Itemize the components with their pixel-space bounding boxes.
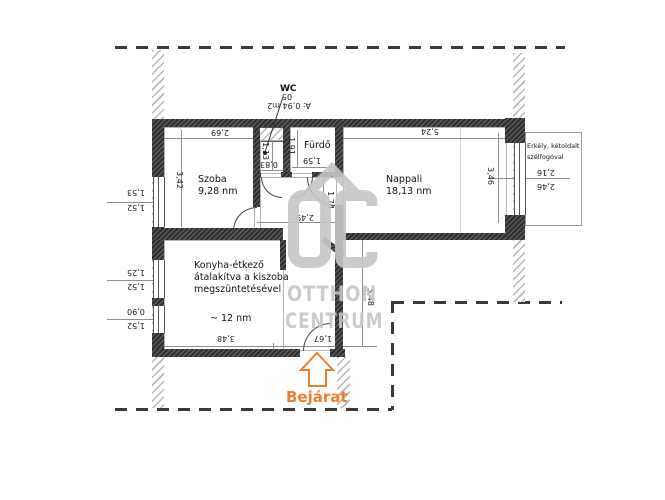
- watermark-brand-line1: OTTHON: [287, 284, 377, 305]
- floor-plan-canvas: 2,695,243,421,531,521,251,520,901,521,13…: [0, 0, 665, 500]
- otthon-centrum-logo-icon: [0, 0, 665, 500]
- watermark-brand-line2: CENTRUM: [285, 311, 383, 332]
- entrance-arrow-icon: [295, 348, 340, 390]
- entrance-label: Bejárat: [286, 388, 348, 406]
